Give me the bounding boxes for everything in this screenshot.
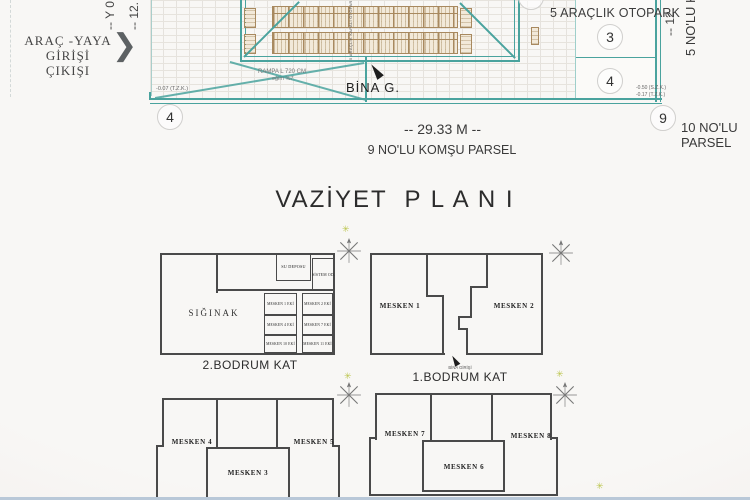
site-marker-9-right: 9 — [650, 105, 676, 131]
room-sistem-od: SİSTEM OD. — [312, 258, 335, 291]
room-siginak-label: SIĞINAK — [164, 308, 264, 318]
elevation-left-label: -0.07 (T.Z.K.) — [156, 86, 188, 92]
rotated-parcel-5-label: 5 NO'LU KOM — [684, 0, 697, 56]
page-title: VAZİYET P L A N I — [250, 186, 540, 214]
parking-stall-3-marker: 3 — [597, 24, 623, 50]
room-mesken-4-label: MESKEN 4 — [166, 438, 218, 446]
building-axis-line — [365, 56, 367, 102]
entrance-label-line3: ÇIKIŞI — [22, 63, 114, 78]
entrance-label: ARAÇ -YAYA GİRİŞİ ÇIKIŞI — [22, 33, 114, 78]
plan-1bodrum-stair-wall — [458, 316, 472, 318]
north-compass-icon — [336, 382, 362, 408]
north-compass-icon — [548, 240, 574, 266]
cell-label: MESKEN 7 EKİ — [304, 323, 331, 327]
room-sistem-od-label: SİSTEM OD. — [312, 273, 335, 277]
plan-1bodrum-stair-wall — [470, 286, 472, 318]
plan-1bodrum-caption: 1.BODRUM KAT — [405, 370, 515, 384]
rotated-label-left-2: -- 12. — [128, 0, 140, 30]
room-mesken-6-label: MESKEN 6 — [436, 463, 492, 471]
room-su-deposu-label: SU DEPOSU — [281, 264, 306, 269]
cell-label: MESKEN 11 EKİ — [303, 342, 332, 346]
cell-mesken-11-eki: MESKEN 11 EKİ — [302, 335, 333, 353]
north-compass-icon — [552, 382, 578, 408]
neighbor-parcel-label: 9 NO'LU KOMŞU PARSEL — [352, 143, 532, 157]
entrance-label-line2: GİRİŞİ — [22, 48, 114, 63]
north-star-icon: ✳ — [556, 370, 564, 379]
parking-stall-divider — [576, 57, 655, 58]
plan-1bodrum-wall — [442, 295, 444, 355]
rotated-label-left-1: -- Y 0 — [104, 0, 116, 30]
parcel-corner-step — [149, 92, 151, 100]
site-small-element — [531, 27, 539, 45]
entrance-label-line1: ARAÇ -YAYA — [22, 33, 114, 48]
cell-mesken-1-eki: MESKEN 1 EKİ — [264, 293, 297, 315]
otopark-label: 5 ARAÇLIK OTOPARK — [550, 6, 680, 20]
parcel-boundary-bottom — [150, 98, 662, 104]
parking-stall-4-marker: 4 — [597, 68, 623, 94]
cell-mesken-7-eki: MESKEN 7 EKİ — [302, 315, 333, 335]
room-mesken-5-label: MESKEN 5 — [288, 438, 340, 446]
cell-label: MESKEN 2 EKİ — [304, 302, 331, 306]
cell-label: MESKEN 1 EKİ — [267, 302, 294, 306]
ramp-label-line1: RAMPA L 720 CM — [258, 69, 306, 75]
cell-mesken-4-eki: MESKEN 4 EKİ — [264, 315, 297, 335]
bottom-dimension-label: -- 29.33 M -- — [370, 121, 515, 137]
roof-tiles-row-bottom — [272, 32, 458, 54]
parcel-10-line1: 10 NO'LU — [681, 120, 738, 135]
plan-1bodrum-stair-wall — [470, 286, 488, 288]
cell-mesken-2-eki: MESKEN 2 EKİ — [302, 293, 333, 315]
elevation-right-label-1: -0.50 (S.Z.K.) — [636, 85, 666, 91]
road-dashed-line — [10, 0, 11, 97]
parcel-10-line2: PARSEL — [681, 135, 738, 150]
plan-d-wall — [491, 393, 493, 440]
plan-c-wall — [276, 398, 278, 447]
building-center-label: 5 ARAÇLIK KAPALI OTOPARK — [349, 0, 353, 60]
north-star-icon: ✳ — [596, 482, 604, 491]
room-mesken-7-label: MESKEN 7 — [379, 430, 431, 438]
plan-1bodrum-stair-wall — [486, 253, 488, 288]
room-su-deposu: SU DEPOSU — [276, 253, 311, 281]
plan-2bodrum-caption: 2.BODRUM KAT — [195, 358, 305, 372]
plan-1bodrum-wall — [426, 253, 428, 297]
cell-mesken-10-eki: MESKEN 10 EKİ — [264, 335, 297, 353]
plan-1bodrum-stair-wall — [466, 328, 468, 355]
north-compass-icon — [336, 238, 362, 264]
parcel-boundary-left — [151, 0, 152, 96]
elevation-right-label-2: -0.17 (T.Z.K.) — [636, 92, 665, 98]
bina-g-label: BİNA G. — [346, 80, 400, 95]
roof-side-tile — [460, 34, 472, 54]
north-star-icon: ✳ — [342, 225, 350, 234]
site-marker-4-left: 4 — [157, 104, 183, 130]
plan-d-jog — [369, 437, 377, 439]
room-mesken-2-label: MESKEN 2 — [486, 302, 542, 310]
rotated-dimension-right: -- 12. — [664, 0, 676, 36]
cell-label: MESKEN 4 EKİ — [267, 323, 294, 327]
architectural-drawing: 5 ARAÇLIK KAPALI OTOPARK ARAÇ -YAYA GİRİ… — [0, 0, 750, 500]
parcel-10-label: 10 NO'LU PARSEL — [681, 120, 738, 150]
entrance-chevron-icon: ❯ — [112, 28, 137, 63]
plan-2bodrum-wall — [216, 253, 218, 293]
ramp-label-line2: eğim %7 — [272, 76, 293, 82]
roof-tiles-row-top — [272, 6, 458, 28]
room-mesken-1-label: MESKEN 1 — [372, 302, 428, 310]
roof-tiles-cap-line — [273, 13, 457, 14]
cell-label: MESKEN 10 EKİ — [266, 342, 295, 346]
plan-c-jog — [156, 445, 164, 447]
roof-tiles-cap-line — [273, 39, 457, 40]
room-mesken-8-label: MESKEN 8 — [505, 432, 557, 440]
roof-side-tile — [244, 8, 256, 28]
north-star-icon: ✳ — [344, 372, 352, 381]
room-mesken-3-label: MESKEN 3 — [220, 469, 276, 477]
